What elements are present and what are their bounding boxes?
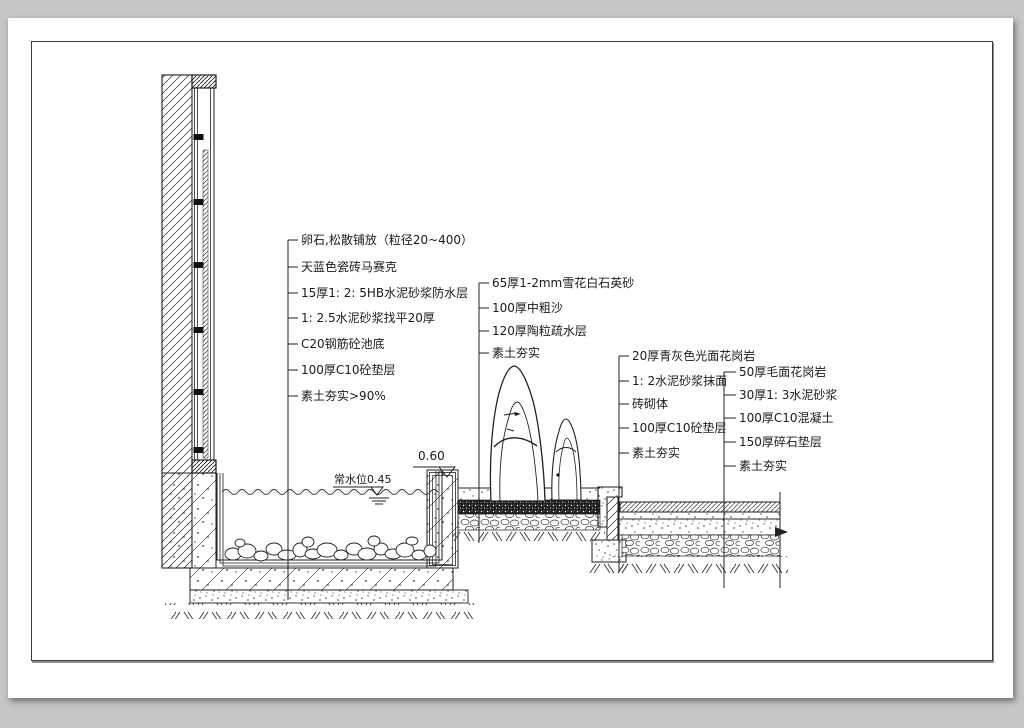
curb-brick-body: [607, 497, 618, 540]
pond-pebbles: [225, 536, 436, 561]
pond-slab: [190, 568, 453, 590]
annotation-label: 20厚青灰色光面花岗岩: [632, 349, 755, 363]
cad-viewer-stage: 卵石,松散铺放（粒径20~400） 天蓝色瓷砖马赛克 15厚1: 2: 5HB水…: [0, 0, 1024, 728]
mosaic-tile-strip: [203, 150, 208, 458]
annotation-label: 1: 2.5水泥砂浆找平20厚: [301, 311, 435, 325]
detail-section-drawing: [0, 0, 1024, 728]
annotation-label: 素土夯实>90%: [301, 389, 386, 403]
crushed-stone-layer: [622, 535, 780, 556]
paving-section: [612, 492, 788, 588]
annotation-label: C20钢筋砼池底: [301, 337, 385, 351]
annotation-label: 100厚C10砼垫层: [632, 421, 727, 435]
bed-subsoil: [453, 530, 605, 546]
annotation-label: 30厚1: 3水泥砂浆: [739, 388, 837, 402]
water-level-label: 常水位0.45: [334, 473, 392, 487]
small-feature-stone: [552, 419, 581, 500]
paving-subsoil: [612, 556, 788, 574]
elevation-label: 0.60: [418, 449, 445, 463]
wall-bottom-coping: [192, 460, 216, 473]
annotation-label: 素土夯实: [739, 459, 787, 473]
pond-section: [162, 467, 475, 619]
wall-top-coping: [192, 75, 216, 88]
annotation-label: 天蓝色瓷砖马赛克: [301, 260, 397, 274]
annotation-label: 卵石,松散铺放（粒径20~400）: [301, 233, 473, 247]
annotation-label: 100厚中粗沙: [492, 301, 563, 315]
water-level-symbol: [333, 487, 389, 504]
annotation-label: 1: 2水泥砂浆抹面: [632, 374, 727, 388]
annotation-label: 120厚陶粒疏水层: [492, 324, 587, 338]
large-feature-stone: [490, 366, 545, 501]
break-arrow: [775, 527, 788, 537]
pond-subsoil: [165, 603, 475, 619]
annotation-label: 素土夯实: [632, 446, 680, 460]
pond-bedding-layer: [190, 590, 468, 603]
annotation-label: 100厚C10混凝土: [739, 411, 834, 425]
granite-paving-layer: [620, 502, 780, 512]
concrete-layer: [618, 519, 780, 535]
annotation-label: 150厚碎石垫层: [739, 435, 822, 449]
stone-bed-section: [453, 366, 605, 546]
tile-anchor-clips: [194, 134, 204, 453]
annotation-label: 65厚1-2mm雪花白石英砂: [492, 276, 634, 290]
annotation-label: 100厚C10砼垫层: [301, 363, 396, 377]
water-surface-line: [222, 490, 438, 495]
mortar-layer: [618, 512, 780, 519]
annotation-label: 15厚1: 2: 5HB水泥砂浆防水层: [301, 286, 468, 300]
annotation-label: 50厚毛面花岗岩: [739, 365, 826, 379]
annotation-label: 砖砌体: [632, 397, 668, 411]
annotation-label: 素土夯实: [492, 346, 540, 360]
